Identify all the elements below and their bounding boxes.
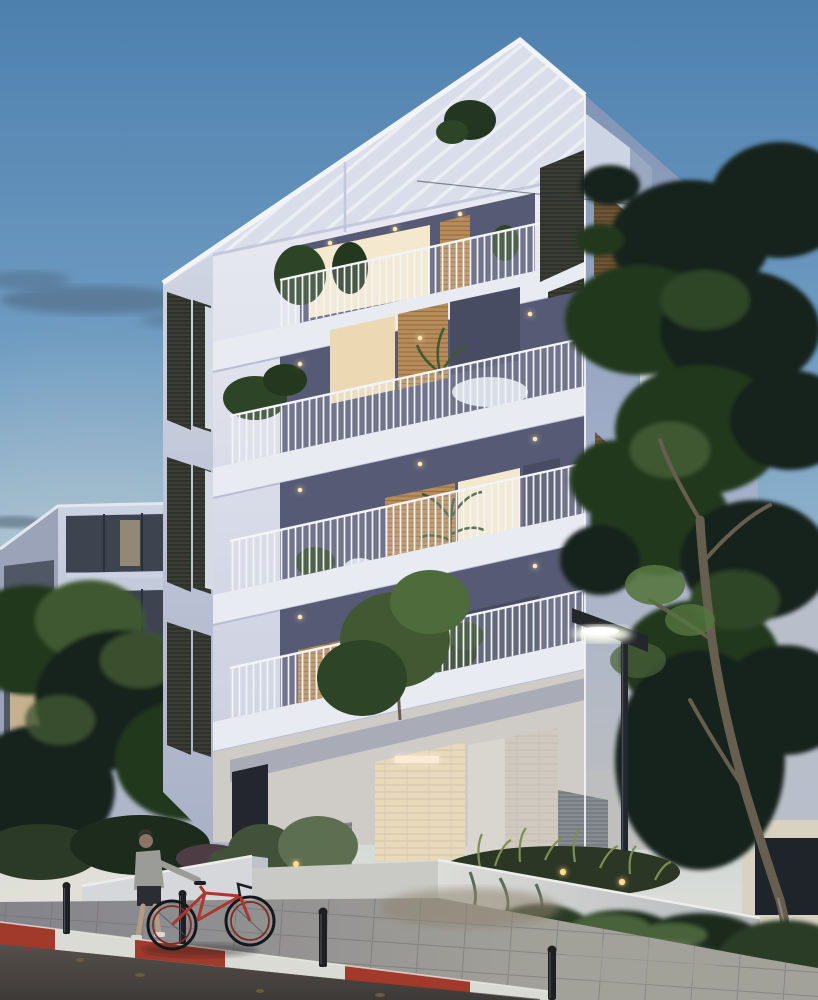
bollard-cap [548,946,557,955]
garden-light [619,879,625,885]
downlight [458,212,463,217]
fallen-leaf [135,973,145,977]
shutter-panel [540,150,584,282]
dusk-building-rendering [0,0,818,1000]
shutter-panel [167,457,191,592]
entrance-ceiling-light [395,756,439,763]
entrance-column [468,738,505,862]
foliage [576,224,624,256]
shutter-panel [167,292,191,430]
downlight [328,241,333,246]
bollard-cap [179,890,187,898]
fallen-leaf [256,989,264,993]
person-head [139,834,153,848]
tree-canopy [317,640,407,716]
rendering-stage [0,0,818,1000]
downlight [418,462,423,467]
person-shoe [131,935,142,940]
shutter-panel [167,622,191,755]
window-glass [205,470,213,590]
foliage-midtone [660,270,750,330]
downlight [298,488,303,493]
person-shorts [137,886,161,906]
bollard-post [319,912,327,967]
tree-canopy-highlight [25,695,95,745]
downlight [533,437,538,442]
person-jacket [134,850,164,890]
foliage [580,165,640,205]
bollard [319,908,328,968]
lamp-light [581,627,619,635]
fallen-leaf [76,958,84,962]
bush-highlight [286,822,334,850]
downlight [298,615,303,620]
bollard-post [548,950,556,1000]
bollard [63,882,71,934]
lamp-light-pool [560,942,720,982]
warm-light-pool [380,888,560,928]
bollard [548,946,557,1000]
downlight [533,564,538,569]
downlight [418,336,423,341]
tree-canopy [390,570,470,634]
left-facade-shutters [167,292,213,757]
bike-seat [194,881,206,885]
downlight [393,227,398,232]
window-glass [205,306,213,430]
rooftop-plant [436,120,468,144]
garden-light [560,869,566,875]
bollard-cap [319,908,328,917]
brick-texture [505,728,558,864]
shutter-panel [193,630,211,757]
bollard-cap [63,882,71,890]
foliage-midtone [630,422,710,478]
balcony-plant [263,364,307,396]
cloud [0,286,190,314]
lamp-lit-foliage [665,604,715,636]
neighbor-lit-window [120,520,140,566]
downlight [298,362,303,367]
garden-light [293,861,299,867]
downlight [528,312,533,317]
lamp-lit-foliage [625,565,685,605]
fallen-leaf [375,993,385,997]
